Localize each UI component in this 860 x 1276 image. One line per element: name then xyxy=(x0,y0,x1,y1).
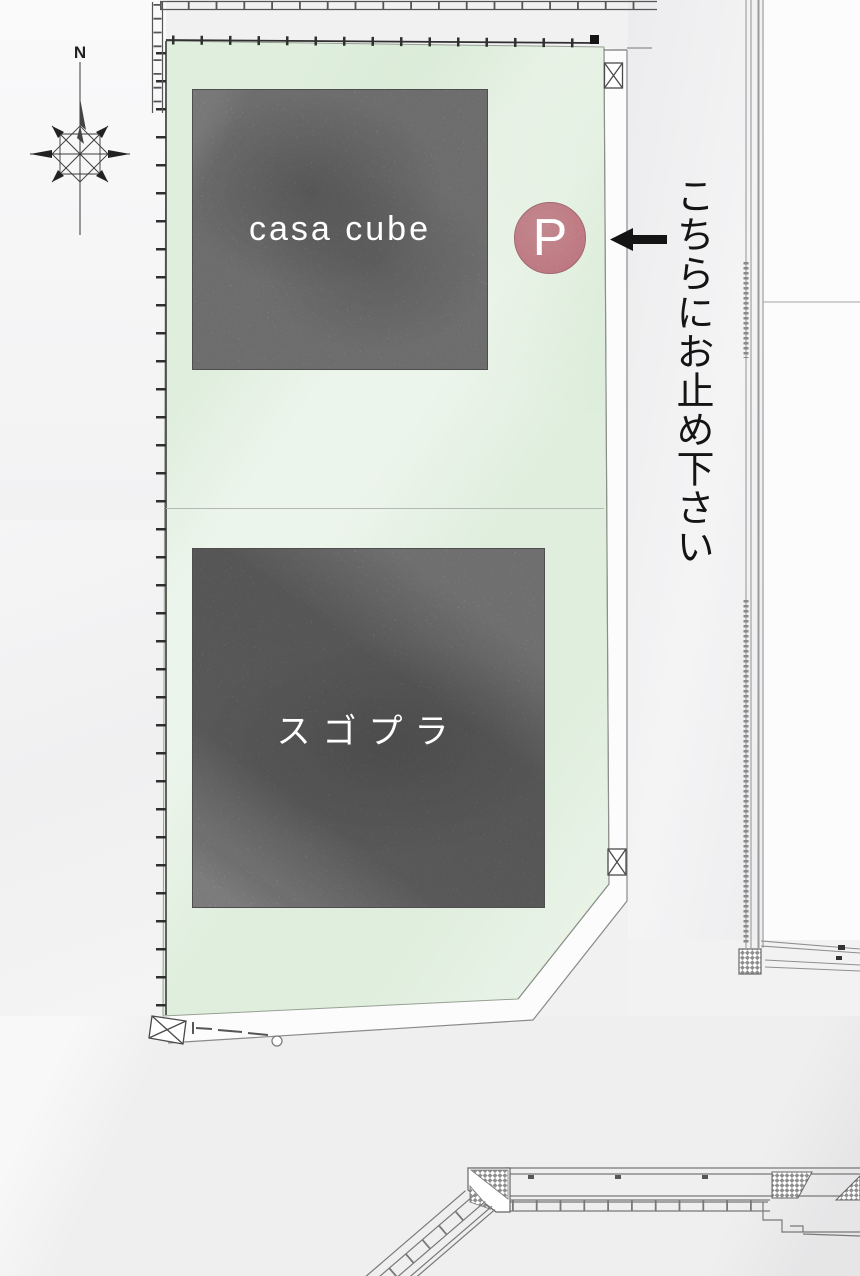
background-wash xyxy=(0,1016,860,1276)
background-wash xyxy=(0,0,166,520)
building-sugopura: スゴプラ xyxy=(192,548,545,908)
building-label: casa cube xyxy=(249,210,431,249)
parking-note: こちらにお止め下さい xyxy=(672,176,710,566)
background-wash xyxy=(628,940,860,1170)
compass-rose-icon: N xyxy=(20,40,150,250)
parking-arrow-icon xyxy=(610,228,667,251)
neighbor-building-area xyxy=(764,0,860,940)
parking-marker: P xyxy=(514,202,586,274)
background-wash xyxy=(0,520,166,1016)
building-label: スゴプラ xyxy=(277,704,461,753)
lot-divider-line xyxy=(166,508,604,509)
north-label: N xyxy=(74,43,86,62)
parking-marker-label: P xyxy=(533,212,568,264)
building-casa-cube: casa cube xyxy=(192,89,488,370)
parking-guide-map: N casa cube スゴプラ P こちらにお xyxy=(0,0,860,1276)
